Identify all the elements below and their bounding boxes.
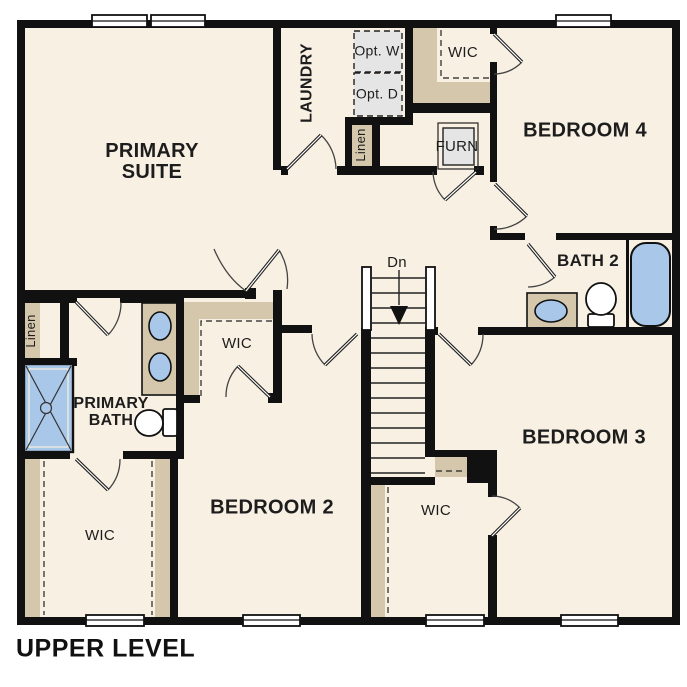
label-linen-upper: Linen	[354, 128, 368, 161]
wic2-shelf-left	[184, 302, 199, 399]
room-label-wic-primary: WIC	[85, 528, 115, 544]
label-opt-dryer: Opt. D	[354, 87, 400, 102]
wic4-shelf-bottom	[413, 82, 490, 103]
room-label-bedroom2: BEDROOM 2	[162, 498, 382, 519]
room-label-laundry: LAUNDRY	[300, 43, 317, 123]
wic4-shelf-left	[413, 28, 437, 86]
label-opt-washer: Opt. W	[354, 44, 400, 59]
label-furnace: FURN	[407, 139, 507, 155]
wic-primary-shelf-left	[25, 459, 40, 617]
room-label-primary-bath: PRIMARY BATH	[65, 396, 157, 430]
room-label-wic-bedroom4: WIC	[448, 45, 478, 61]
bath2-toilet	[586, 283, 616, 327]
label-stairs-down: Dn	[387, 255, 407, 271]
floor-plan: PRIMARY SUITE LAUNDRY Opt. W Opt. D Line…	[0, 0, 687, 687]
wic3-shelf-nook	[435, 457, 467, 477]
room-label-wic-bedroom2: WIC	[222, 336, 252, 352]
bath2-sink	[535, 300, 567, 322]
label-linen-lower: Linen	[24, 314, 38, 347]
room-label-bedroom3: BEDROOM 3	[474, 428, 687, 449]
floor-area	[20, 23, 677, 622]
stair-rail-right	[426, 267, 435, 330]
room-label-bath2: BATH 2	[553, 252, 623, 270]
plan-title: UPPER LEVEL	[16, 635, 195, 664]
room-label-wic-bedroom3: WIC	[421, 503, 451, 519]
wic-primary-shelf-right	[155, 459, 170, 617]
room-label-primary-suite: PRIMARY SUITE	[77, 141, 227, 183]
bathtub	[631, 243, 670, 326]
floor-plan-drawing	[0, 0, 687, 687]
stair-rail-left	[362, 267, 371, 330]
